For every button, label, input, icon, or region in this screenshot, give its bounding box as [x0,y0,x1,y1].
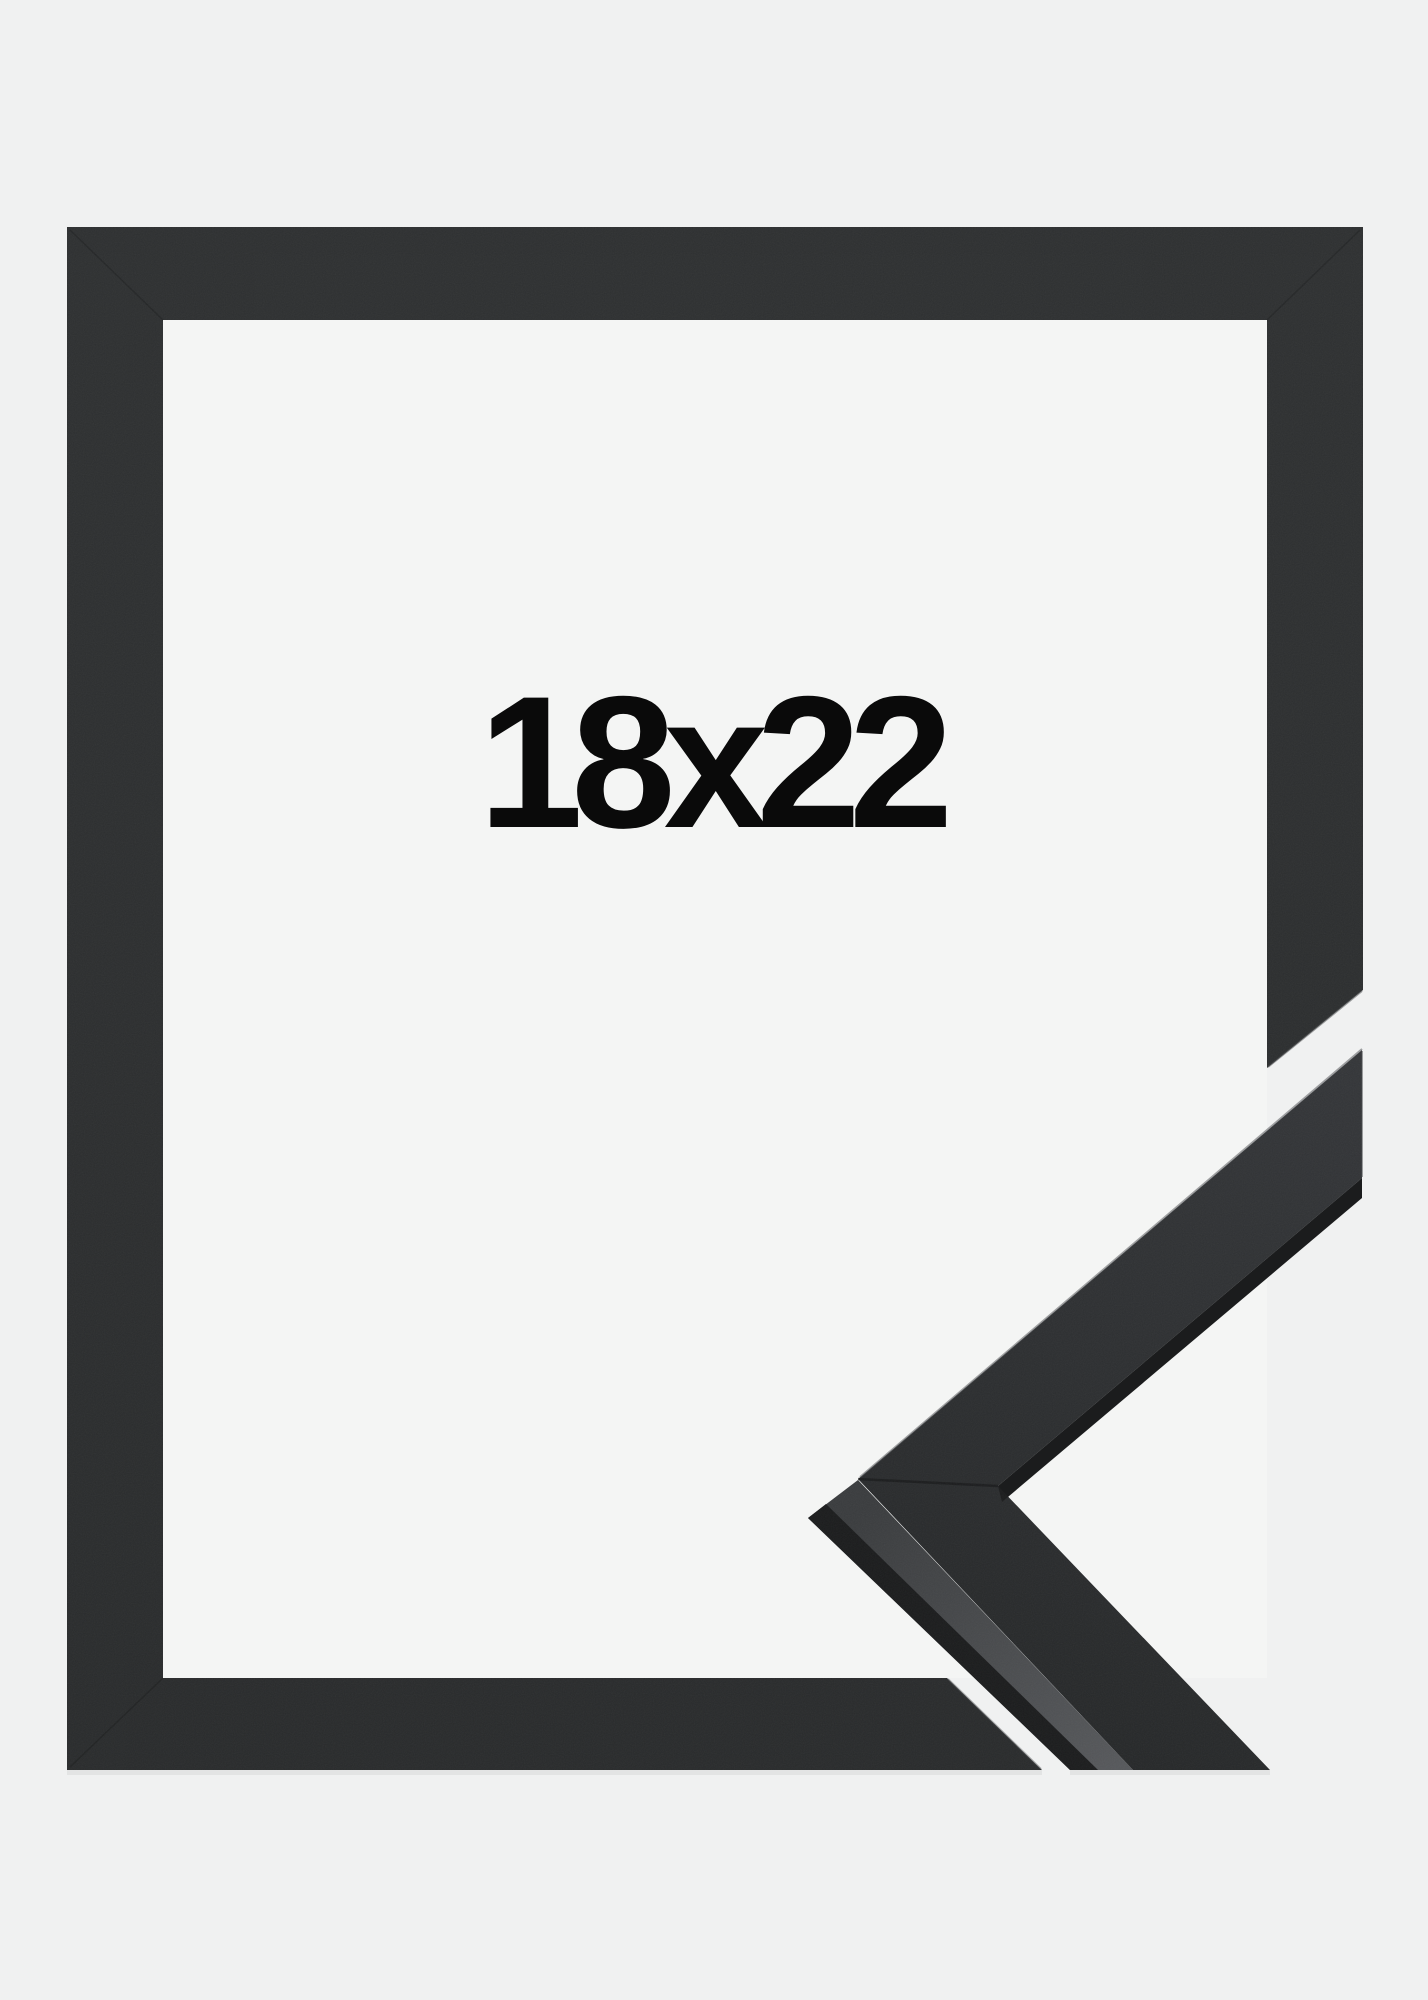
sample-bottom-shadow [1070,1770,1270,1775]
product-photo: 18x22 [0,0,1428,2000]
frame-illustration: 18x22 [0,0,1428,2000]
frame-opening [163,320,1267,1678]
frame-bottom-shadow [67,1770,1042,1775]
size-label: 18x22 [479,657,947,867]
